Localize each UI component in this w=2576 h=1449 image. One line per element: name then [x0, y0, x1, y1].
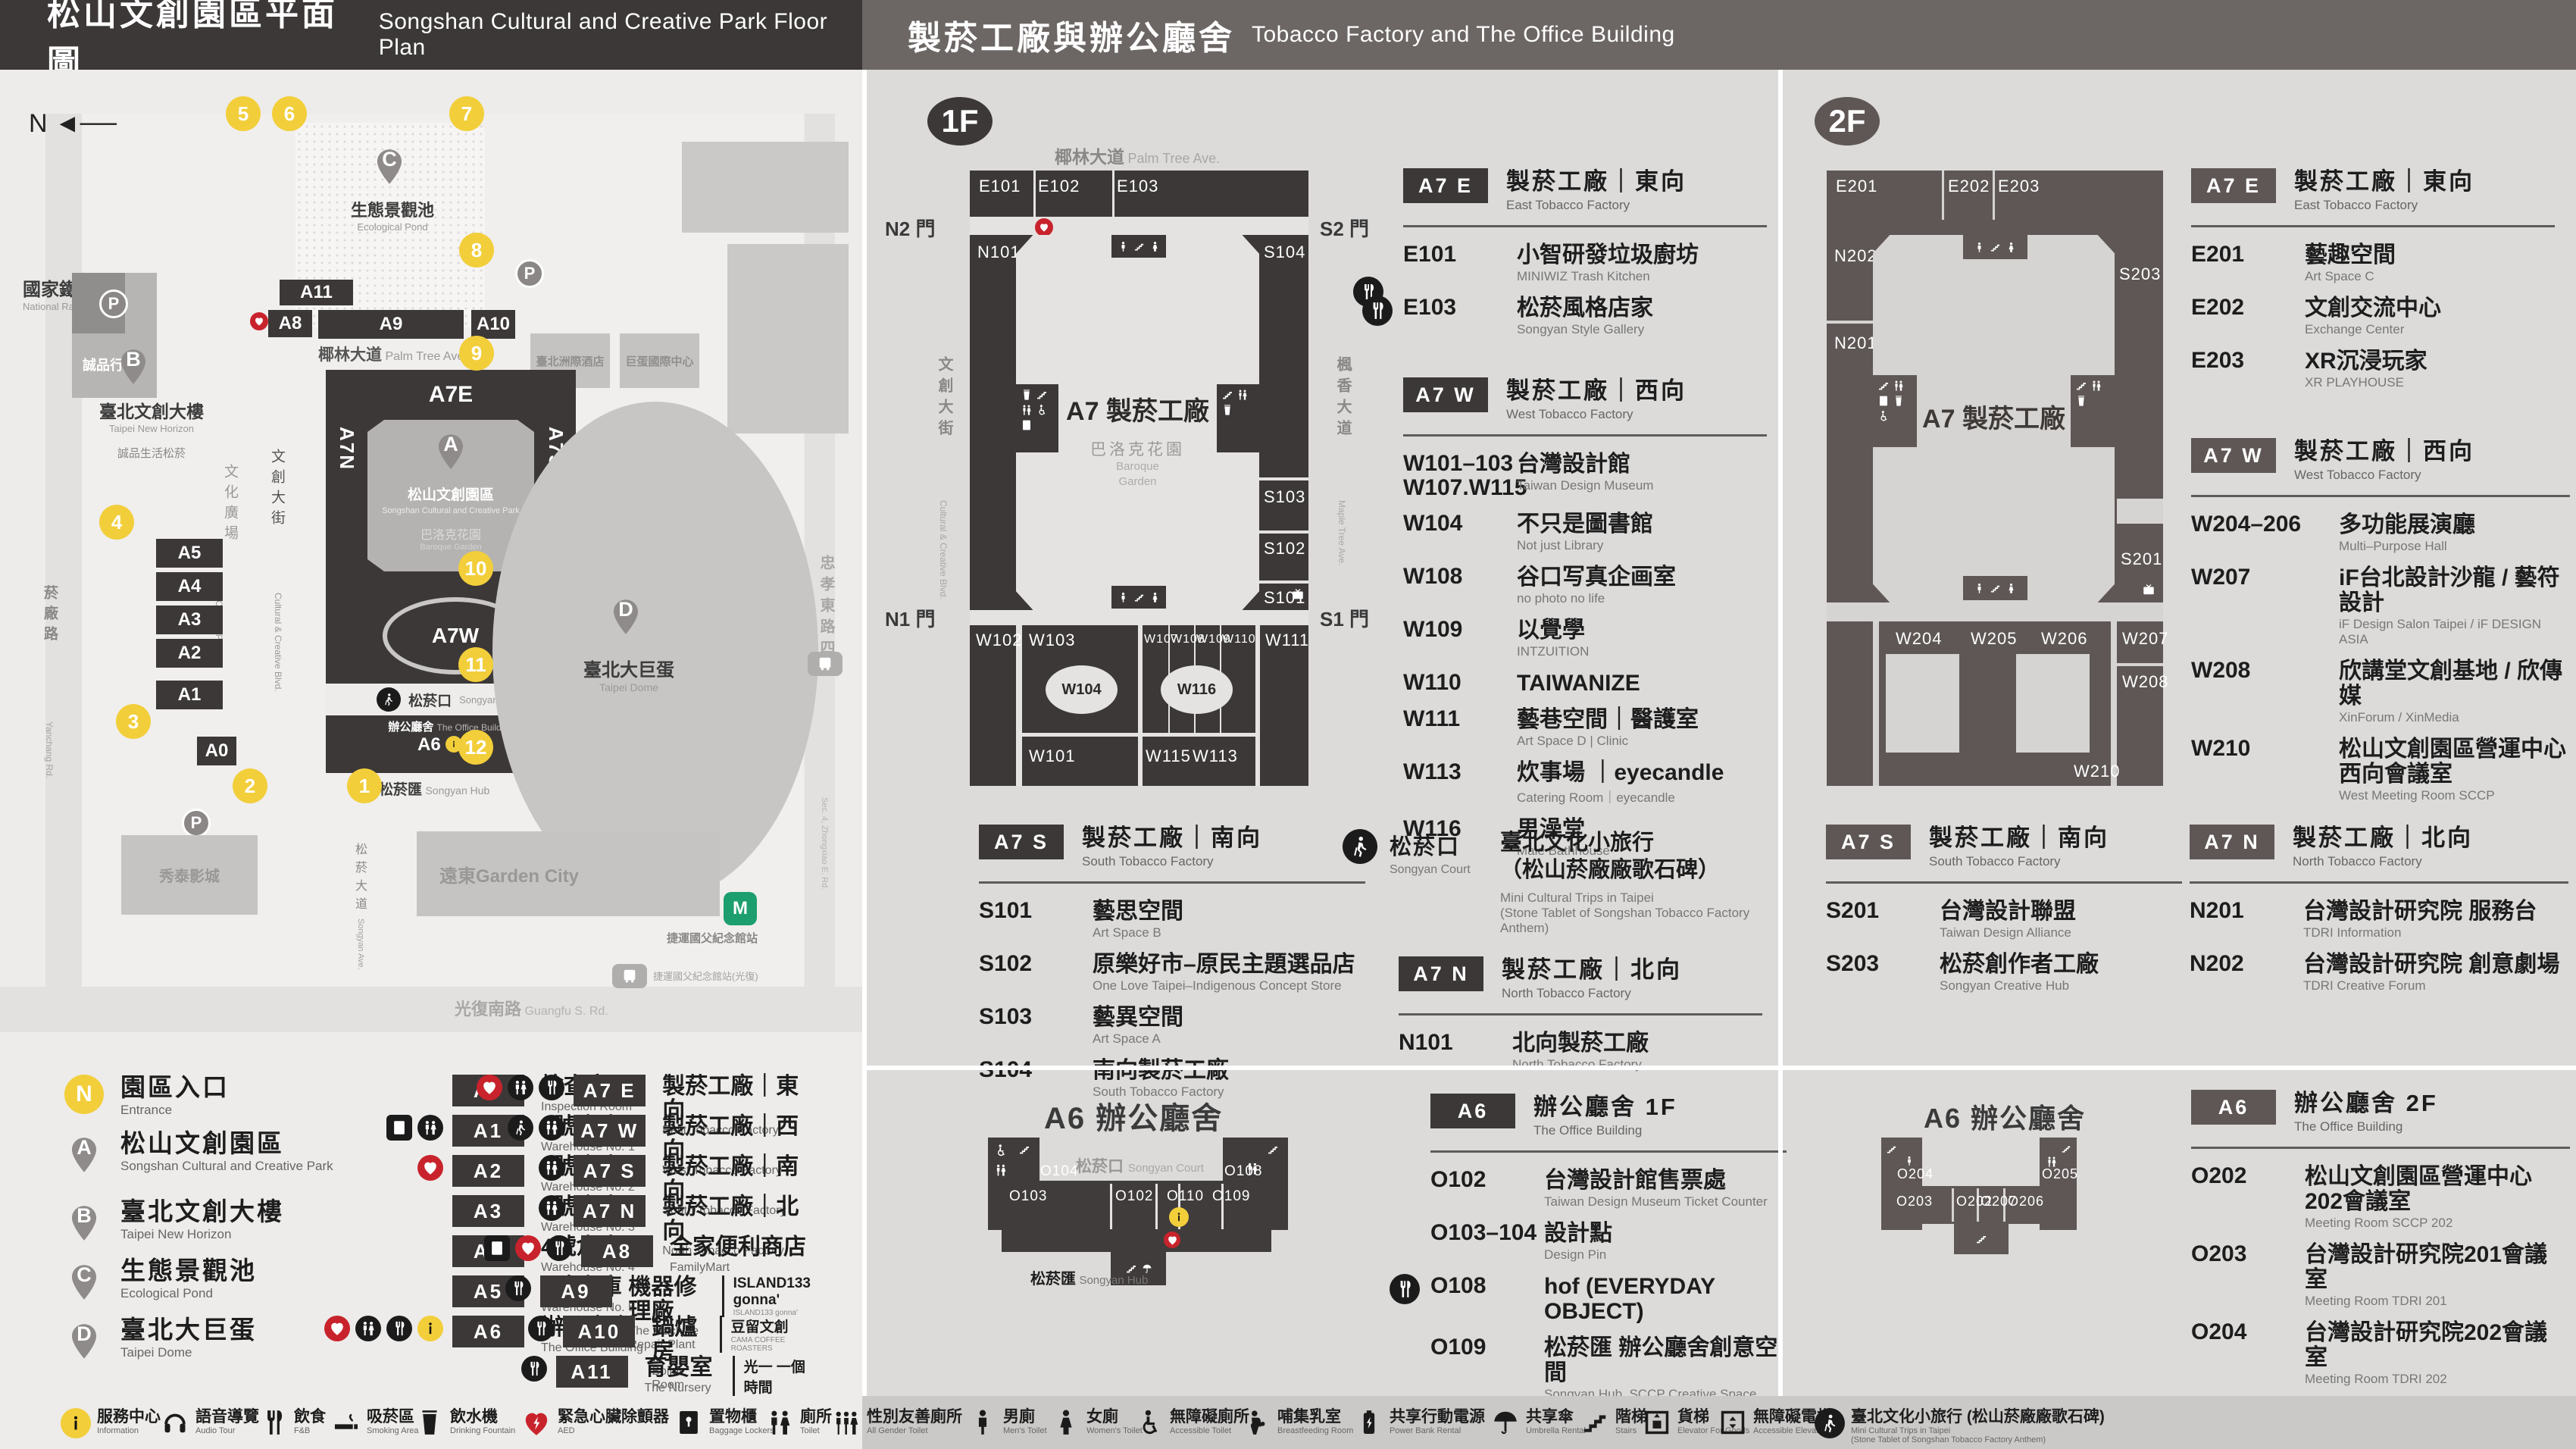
section-title-zh: 製菸工廠與辦公廳舍	[908, 11, 1235, 59]
directory-row: S102原樂好市–原民主題選品店One Love Taipei–Indigeno…	[979, 952, 1365, 994]
pin-icon: A	[64, 1131, 104, 1179]
locker-icon	[1021, 419, 1033, 431]
metro-icon: M	[724, 892, 757, 925]
section-badge: A7 N	[1399, 956, 1483, 991]
f2-a7w-directory: A7 W製菸工廠｜西向West Tobacco FactoryW204–206多…	[2191, 438, 2570, 815]
room-code: E203	[2191, 349, 2305, 390]
tenant-note: 豆留文創CAMA COFFEE ROASTERS	[720, 1316, 811, 1353]
wheelchair-icon	[994, 1144, 1008, 1157]
section-title-zh: 製菸工廠｜東向	[2294, 168, 2474, 196]
facility-tab	[1963, 576, 2027, 600]
room-o203: O203	[1896, 1194, 1933, 1210]
section-title-en: West Tobacco Factory	[1506, 407, 1687, 422]
section-title-zh: 製菸工廠｜西向	[1506, 377, 1687, 405]
room-name: 松菸風格店家Songyan Style Gallery	[1517, 296, 1653, 337]
stairs-icon	[1018, 1144, 1030, 1156]
entrance-number-8: 8	[459, 233, 494, 268]
section-badge: A7 W	[2191, 438, 2276, 473]
locker-icon	[1877, 395, 1890, 407]
block-a8: A8	[268, 310, 312, 337]
men-icon	[1118, 241, 1129, 252]
building-badge: A10	[563, 1316, 635, 1347]
legend-place-D: D臺北大巨蛋Taipei Dome	[64, 1317, 348, 1366]
section-badge: A6	[1430, 1094, 1515, 1128]
food-icon	[259, 1408, 288, 1437]
room-name: 松山文創園區營運中心202會議室Meeting Room SCCP 202	[2305, 1164, 2570, 1231]
entrance-number-10: 10	[458, 551, 493, 586]
locker-icon	[386, 1115, 412, 1141]
aed-icon	[515, 1235, 541, 1261]
aed-icon	[417, 1155, 443, 1181]
fountain-icon	[415, 1408, 444, 1437]
entrance-number-5: 5	[226, 96, 261, 131]
building-badge: A9	[540, 1275, 612, 1307]
stairs-icon	[1990, 583, 2001, 594]
room-s103: S103	[1264, 487, 1305, 507]
yanchang-rd-label: 菸廠路	[39, 585, 60, 646]
amenity-fountain: 飲水機Drinking Fountain	[415, 1408, 515, 1437]
room-e202: E202	[1948, 177, 1990, 196]
a7e-map-label: A7E	[326, 370, 576, 420]
room-code: O102	[1430, 1168, 1544, 1210]
room-name: 台灣設計館Taiwan Design Museum	[1517, 452, 1653, 501]
section-title-en: The Office Building	[1533, 1123, 1677, 1138]
hub-map-label: 松菸匯 Songyan Hub	[379, 778, 489, 799]
men-icon	[1974, 242, 1985, 253]
directory-row: E101小智研發垃圾廚坊MINIWIZ Trash Kitchen	[1403, 243, 1767, 284]
room-w111: W111	[1265, 631, 1309, 650]
entrance-number-7: 7	[449, 96, 484, 131]
section-title-en: South Tobacco Factory	[1082, 854, 1262, 869]
room-w104: W104	[1046, 665, 1118, 714]
f2-a7n-directory: A7 N製菸工廠｜北向North Tobacco FactoryN201台灣設計…	[2190, 825, 2568, 1005]
room-e101: E101	[979, 177, 1021, 196]
hub-label: 松菸匯 Songyan Hub	[1030, 1266, 1148, 1288]
facility-tab	[1873, 375, 1917, 447]
room-name: 台灣設計館售票處Taiwan Design Museum Ticket Coun…	[1544, 1168, 1768, 1210]
info-icon	[417, 1316, 443, 1341]
a6-1f-plan: A6 辦公廳舍 O104 O108 松菸口 Songyan Court O103…	[985, 1094, 1296, 1291]
stairs-icon	[1133, 241, 1145, 252]
walker-icon	[1815, 1408, 1845, 1438]
goods-icon	[1643, 1408, 1671, 1437]
section-title-en: East Tobacco Factory	[1506, 198, 1687, 213]
f1-right-street: 楓香大道	[1332, 356, 1354, 441]
amenity-umbrella: 共享傘Umbrella Rental	[1491, 1408, 1586, 1437]
section-title-zh: 製菸工廠｜東向	[1506, 168, 1687, 196]
stairs-icon	[2075, 380, 2087, 392]
entrance-number-12: 12	[458, 730, 493, 765]
room-name: 炊事場 ｜eyecandleCatering Room｜eyecandle	[1517, 760, 1724, 806]
directory-row: S203松菸創作者工廠Songyan Creative Hub	[1826, 952, 2182, 994]
toilet-icon	[2090, 380, 2102, 392]
directory-row: W109以覺學INTZUITION	[1403, 618, 1767, 659]
block-a9: A9	[318, 310, 464, 339]
pond-label: 生態景觀池 Ecological Pond	[332, 197, 453, 233]
room-s102: S102	[1264, 539, 1305, 559]
legend-place-C: C生態景觀池Ecological Pond	[64, 1258, 348, 1307]
amenity-toilet: 廁所Toilet	[765, 1408, 832, 1437]
allgender-icon	[832, 1408, 861, 1437]
room-code: O202	[2191, 1164, 2305, 1231]
food-icon	[521, 1356, 547, 1382]
pin-c: C	[370, 142, 409, 191]
amenity-nursing: 哺集乳室Breastfeeding Room	[1243, 1408, 1353, 1437]
room-w205: W205	[1971, 629, 2017, 649]
toilet-icon	[539, 1195, 564, 1221]
room-name: 台灣設計研究院 創意劇場TDRI Creative Forum	[2303, 952, 2559, 994]
directory-row: N202台灣設計研究院 創意劇場TDRI Creative Forum	[2190, 952, 2568, 994]
section-title-zh: 製菸工廠｜北向	[1502, 956, 1682, 984]
room-code: W109	[1403, 618, 1517, 659]
room-w103: W103	[1029, 631, 1075, 650]
gate-s1: S1 門	[1320, 604, 1369, 632]
showtimes-block: 秀泰影城	[121, 835, 258, 915]
bus-stop-label: 捷運國父紀念館站(光復)	[653, 969, 758, 983]
stairs-icon	[1886, 1144, 1897, 1155]
room-name: 藝趣空間Art Space C	[2305, 243, 2396, 284]
room-name: 台灣設計研究院202會議室Meeting Room TDRI 202	[2305, 1320, 2570, 1387]
songyan-court-info: 松菸口 Songyan Court 臺北文化小旅行 （松山菸廠廠歌石碑） Min…	[1343, 829, 1767, 936]
room-code: S102	[979, 952, 1093, 994]
room-o108: O108	[1224, 1163, 1262, 1180]
toilet-icon	[539, 1115, 564, 1141]
building-badge: A7 E	[574, 1075, 646, 1106]
amenity-wheelchair: 無障礙廁所Accessible Toilet	[1135, 1408, 1249, 1437]
parking-icon: P	[515, 259, 544, 288]
stairs-icon	[1580, 1408, 1609, 1437]
room-name: TAIWANIZE	[1517, 671, 1640, 696]
amenity-walker: 臺北文化小旅行 (松山菸廠廠歌石碑)Mini Cultural Trips in…	[1815, 1408, 2105, 1444]
section-badge: A7 W	[1403, 377, 1488, 412]
building-badge: A8	[581, 1235, 653, 1267]
nursing-icon	[1243, 1408, 1271, 1437]
room-name: hof (EVERYDAY OBJECT)	[1544, 1274, 1787, 1324]
section-badge: A7 E	[1403, 168, 1488, 203]
toilet-icon	[1236, 389, 1249, 401]
wheelchair-icon	[1135, 1408, 1164, 1437]
building-badge: A11	[556, 1356, 628, 1388]
women-icon	[1052, 1408, 1080, 1437]
amenity-info: 服務中心Information	[61, 1408, 161, 1438]
room-name: 松菸創作者工廠Songyan Creative Hub	[1940, 952, 2099, 994]
pin-d: D	[606, 593, 646, 641]
f1-a7w-directory: A7 W製菸工廠｜西向West Tobacco FactoryW101–103W…	[1403, 377, 1767, 870]
dome-label: 臺北大巨蛋 Taipei Dome	[561, 655, 697, 693]
entrance-number-1: 1	[347, 768, 382, 803]
a6-2f-directory: A6辦公廳舍 2FThe Office BuildingO202松山文創園區營運…	[2191, 1090, 2570, 1449]
women-icon	[2005, 242, 2017, 253]
room-code: O109	[1430, 1335, 1544, 1402]
room-code: S101	[979, 899, 1093, 940]
parking-icon: P	[99, 289, 128, 318]
walker-icon	[1343, 829, 1377, 864]
stairs-icon	[1221, 389, 1233, 401]
entrance-number-2: 2	[233, 768, 267, 803]
floor-divider	[1778, 70, 1783, 1396]
smoking-icon	[332, 1408, 361, 1437]
f1-a7e-directory: A7 E製菸工廠｜東向East Tobacco FactoryE101小智研發垃…	[1403, 168, 1767, 349]
aed-icon	[477, 1075, 502, 1100]
a6-entry-tab	[1954, 1224, 2009, 1254]
food-icon	[546, 1235, 572, 1261]
room-s201: S201	[2121, 549, 2162, 569]
directory-row: S101藝思空間Art Space B	[979, 899, 1365, 940]
stairs-icon	[1036, 389, 1048, 401]
panel-divider	[862, 70, 867, 1449]
food-icon	[505, 1275, 531, 1301]
directory-row: E203XR沉浸玩家XR PLAYHOUSE	[2191, 349, 2555, 390]
directory-row: N201台灣設計研究院 服務台TDRI Information	[2190, 899, 2568, 940]
directory-row: W204–206多功能展演廳Multi–Purpose Hall	[2191, 512, 2570, 554]
food-icon	[386, 1316, 412, 1341]
directory-row: O102台灣設計館售票處Taiwan Design Museum Ticket …	[1430, 1168, 1787, 1210]
pin-b: B	[114, 343, 153, 391]
block-a10: A10	[471, 310, 515, 339]
tv-icon	[2142, 584, 2156, 597]
food-icon	[528, 1316, 554, 1341]
amenity-smoking: 吸菸區Smoking Area	[332, 1408, 418, 1437]
room-name: 藝異空間Art Space A	[1093, 1005, 1183, 1047]
room-code: O203	[2191, 1242, 2305, 1309]
building-name: 全家便利商店FamilyMart	[670, 1235, 806, 1275]
section-title-en: East Tobacco Factory	[2294, 198, 2474, 213]
dome-intl-block: 巨蛋國際中心	[620, 333, 699, 388]
room-code: W113	[1403, 760, 1517, 806]
section-title-en: North Tobacco Factory	[1502, 986, 1682, 1001]
info-icon	[61, 1408, 91, 1438]
songyan-ave-label: 松菸大道	[350, 843, 368, 915]
block-a11: A11	[280, 280, 353, 305]
room-code: W210	[2191, 737, 2339, 803]
room-o103: O103	[1009, 1188, 1047, 1205]
directory-row: W111藝巷空間｜醫護室Art Space D | Clinic	[1403, 707, 1767, 749]
women-icon	[1149, 592, 1161, 603]
legend-place-B: B臺北文創大樓Taipei New Horizon	[64, 1199, 348, 1247]
section-title-en: South Tobacco Factory	[1929, 854, 2109, 869]
room-code: E101	[1403, 243, 1517, 284]
parking-icon: P	[182, 809, 211, 837]
section-title-zh: 製菸工廠｜南向	[1929, 825, 2109, 852]
room-name: 藝思空間Art Space B	[1093, 899, 1183, 940]
room-n101: N101	[977, 243, 1021, 262]
f1-a7n-directory: A7 N製菸工廠｜北向North Tobacco FactoryN101北向製菸…	[1399, 956, 1762, 1084]
fountain-icon	[2075, 395, 2087, 407]
f2-a7s-directory: A7 S製菸工廠｜南向South Tobacco FactoryS201台灣設計…	[1826, 825, 2182, 1005]
toilet-icon	[765, 1408, 794, 1437]
stairs-icon	[1133, 592, 1145, 603]
room-code: W204–206	[2191, 512, 2339, 554]
amenity-food: 飲食F&B	[259, 1408, 326, 1437]
floor2-plan: E201 E202 E203 N202 N201 S203 S201 A7 製菸…	[1827, 171, 2163, 786]
room-w102: W102	[976, 631, 1022, 650]
a6-2f-plan: A6 辦公廳舍 O204 O205 O203 O202 O207 O206	[1881, 1094, 2093, 1268]
room-e201: E201	[1836, 177, 1877, 196]
room-name: 欣講堂文創基地 / 欣傳媒XinForum / XinMedia	[2339, 659, 2570, 725]
men-icon	[968, 1408, 997, 1437]
room-code: W101–103W107.W115	[1403, 452, 1517, 501]
f1-left-street: 文創大街	[933, 356, 955, 441]
cultural-plaza-label: 文化廣場	[220, 464, 240, 546]
room-e203: E203	[1998, 177, 2040, 196]
section-title-en: Tobacco Factory and The Office Building	[1252, 22, 1675, 48]
room-o110: O110	[1167, 1188, 1204, 1205]
road-west	[45, 114, 82, 1027]
entrance-number-3: 3	[116, 704, 151, 739]
section-badge: A7 S	[979, 825, 1064, 859]
facility-tab	[1217, 384, 1259, 452]
locker-icon	[674, 1408, 703, 1437]
room-code: S103	[979, 1005, 1093, 1047]
entrance-number-9: 9	[459, 336, 494, 371]
amenity-powerbank: 共享行動電源Power Bank Rental	[1355, 1408, 1485, 1437]
toilet-icon	[1893, 380, 1905, 392]
amenity-allgender: 性別友善廁所All Gender Toilet	[832, 1408, 962, 1437]
aed-icon	[1035, 218, 1053, 236]
fountain-icon	[1021, 389, 1033, 401]
walker-icon	[508, 1115, 533, 1141]
room-code: W108	[1403, 565, 1517, 606]
room-name: 谷口写真企画室no photo no life	[1517, 565, 1676, 606]
room-code: W110	[1403, 671, 1517, 696]
room-code: E103	[1403, 296, 1517, 337]
pin-icon: C	[64, 1258, 104, 1307]
garden-city-block: 遠東Garden City	[417, 831, 720, 916]
powerbank-icon	[1355, 1408, 1383, 1437]
women-icon	[2005, 583, 2017, 594]
room-o206: O206	[2008, 1194, 2044, 1210]
directory-row: W104不只是圖書館Not just Library	[1403, 512, 1767, 553]
building-block	[682, 142, 849, 233]
room-code: S201	[1826, 899, 1940, 940]
walker-icon	[377, 687, 401, 712]
room-name: XR沉浸玩家XR PLAYHOUSE	[2305, 349, 2428, 390]
room-w115: W115	[1146, 746, 1191, 766]
directory-row: O202松山文創園區營運中心202會議室Meeting Room SCCP 20…	[2191, 1164, 2570, 1231]
fountain-icon	[1221, 404, 1233, 416]
building-badge: A7 W	[574, 1115, 646, 1147]
amenity-men: 男廁Men's Toilet	[968, 1408, 1047, 1437]
room-code: N202	[2190, 952, 2303, 994]
section-title-zh: 製菸工廠｜西向	[2294, 438, 2474, 465]
room-name: 松山文創園區營運中心西向會議室West Meeting Room SCCP	[2339, 737, 2566, 803]
mrt-label: 捷運國父紀念館站	[667, 930, 758, 946]
room-name: 松菸匯 辦公廳舍創意空間Songyan Hub, SCCP Creative S…	[1544, 1335, 1787, 1402]
new-horizon-label: 臺北文創大樓 Taipei New Horizon 誠品生活松菸	[76, 397, 227, 461]
room-name: 原樂好市–原民主題選品店One Love Taipei–Indigenous C…	[1093, 952, 1355, 994]
directory-row: W101–103W107.W115台灣設計館Taiwan Design Muse…	[1403, 452, 1767, 501]
toilet-icon	[355, 1316, 381, 1341]
toilet-icon	[508, 1075, 533, 1100]
room-e103: E103	[1117, 177, 1158, 196]
directory-row: W210松山文創園區營運中心西向會議室West Meeting Room SCC…	[2191, 737, 2570, 803]
floor2-badge: 2F	[1815, 97, 1880, 146]
room-name: 以覺學INTZUITION	[1517, 618, 1589, 659]
directory-row: O203台灣設計研究院201會議室Meeting Room TDRI 201	[2191, 1242, 2570, 1309]
building-block	[727, 244, 849, 433]
pin-icon: B	[64, 1199, 104, 1247]
directory-row: E202文創交流中心Exchange Center	[2191, 296, 2555, 337]
directory-row: W208欣講堂文創基地 / 欣傳媒XinForum / XinMedia	[2191, 659, 2570, 725]
toilet-icon	[994, 1163, 1008, 1177]
wheelchair-icon	[1036, 404, 1048, 416]
stairs-icon	[1877, 380, 1890, 392]
room-w116: W116	[1161, 665, 1233, 714]
header-left: 松山文創園區平面圖 Songshan Cultural and Creative…	[0, 0, 862, 70]
toilet-icon	[417, 1115, 443, 1141]
aed-icon	[1164, 1231, 1180, 1248]
tenant-note: ISLAND133 gonna'ISLAND133 gonna'	[722, 1275, 811, 1317]
room-n202: N202	[1834, 246, 1877, 266]
directory-row: W207iF台北設計沙龍 / 藝符設計iF Design Salon Taipe…	[2191, 565, 2570, 647]
north-icon: N ◄──	[29, 109, 117, 139]
section-title-en: The Office Building	[2294, 1119, 2438, 1134]
amenity-audio: 語音導覽Audio Tour	[161, 1408, 259, 1437]
building-badge: A7 N	[574, 1195, 646, 1227]
block-a3: A3	[156, 606, 223, 634]
legend-place-N: N園區入口Entrance	[64, 1075, 348, 1118]
entrance-number-11: 11	[458, 647, 493, 682]
room-code: W208	[2191, 659, 2339, 725]
amenity-women: 女廁Women's Toilet	[1052, 1408, 1143, 1437]
pin-icon: D	[64, 1317, 104, 1366]
band-divider	[862, 1066, 2576, 1070]
section-badge: A7 E	[2191, 168, 2276, 203]
floor1-plan: E101 E102 E103 N101 S104 S103 S102 S101 …	[970, 171, 1308, 786]
block-a0: A0	[197, 737, 236, 765]
women-icon	[1149, 241, 1161, 252]
section-badge: A6	[2191, 1090, 2276, 1125]
section-badge: A7 S	[1826, 825, 1911, 859]
room-name: 台灣設計研究院201會議室Meeting Room TDRI 201	[2305, 1242, 2570, 1309]
room-name: 不只是圖書館Not just Library	[1517, 512, 1653, 553]
floor1-badge: 1F	[927, 97, 993, 146]
room-o204: O204	[1897, 1166, 1934, 1182]
room-s104: S104	[1264, 243, 1305, 262]
section-title-en: North Tobacco Factory	[2293, 854, 2473, 869]
section-title-en: West Tobacco Factory	[2294, 468, 2474, 483]
amenity-locker: 置物櫃Baggage Lockers	[674, 1408, 774, 1437]
directory-row: W110TAIWANIZE	[1403, 671, 1767, 696]
room-code: O103–104	[1430, 1221, 1544, 1263]
toilet-icon	[539, 1155, 564, 1181]
room-w207: W207	[2122, 629, 2168, 649]
legend-place-A: A松山文創園區Songshan Cultural and Creative Pa…	[64, 1131, 348, 1179]
room-code: N201	[2190, 899, 2303, 940]
room-name: 台灣設計研究院 服務台TDRI Information	[2303, 899, 2537, 940]
locker-icon	[484, 1235, 510, 1261]
page-title-en: Songshan Cultural and Creative Park Floo…	[379, 9, 862, 61]
aed-icon	[521, 1408, 552, 1438]
entrance-number-4: 4	[99, 505, 134, 540]
ccb-label: 文創大街	[267, 449, 287, 530]
room-o109: O109	[1212, 1188, 1250, 1205]
room-code: O108	[1430, 1274, 1544, 1324]
food-icon	[539, 1075, 564, 1100]
entrance-marker-icon: N	[64, 1075, 104, 1114]
men-icon	[1904, 1156, 1915, 1166]
directory-row: E103松菸風格店家Songyan Style Gallery	[1403, 296, 1767, 337]
room-name: 藝巷空間｜醫護室Art Space D | Clinic	[1517, 707, 1699, 749]
amenity-stairs: 階梯Stairs	[1580, 1408, 1647, 1437]
wheelchair-icon	[1877, 410, 1890, 422]
section-title-zh: 製菸工廠｜南向	[1082, 825, 1262, 852]
men-icon	[1974, 583, 1985, 594]
room-name: iF台北設計沙龍 / 藝符設計iF Design Salon Taipei / …	[2339, 565, 2570, 647]
section-badge: A7 N	[2190, 825, 2274, 859]
gate-n2: N2 門	[885, 214, 935, 242]
building-badge: A7 S	[574, 1155, 646, 1187]
